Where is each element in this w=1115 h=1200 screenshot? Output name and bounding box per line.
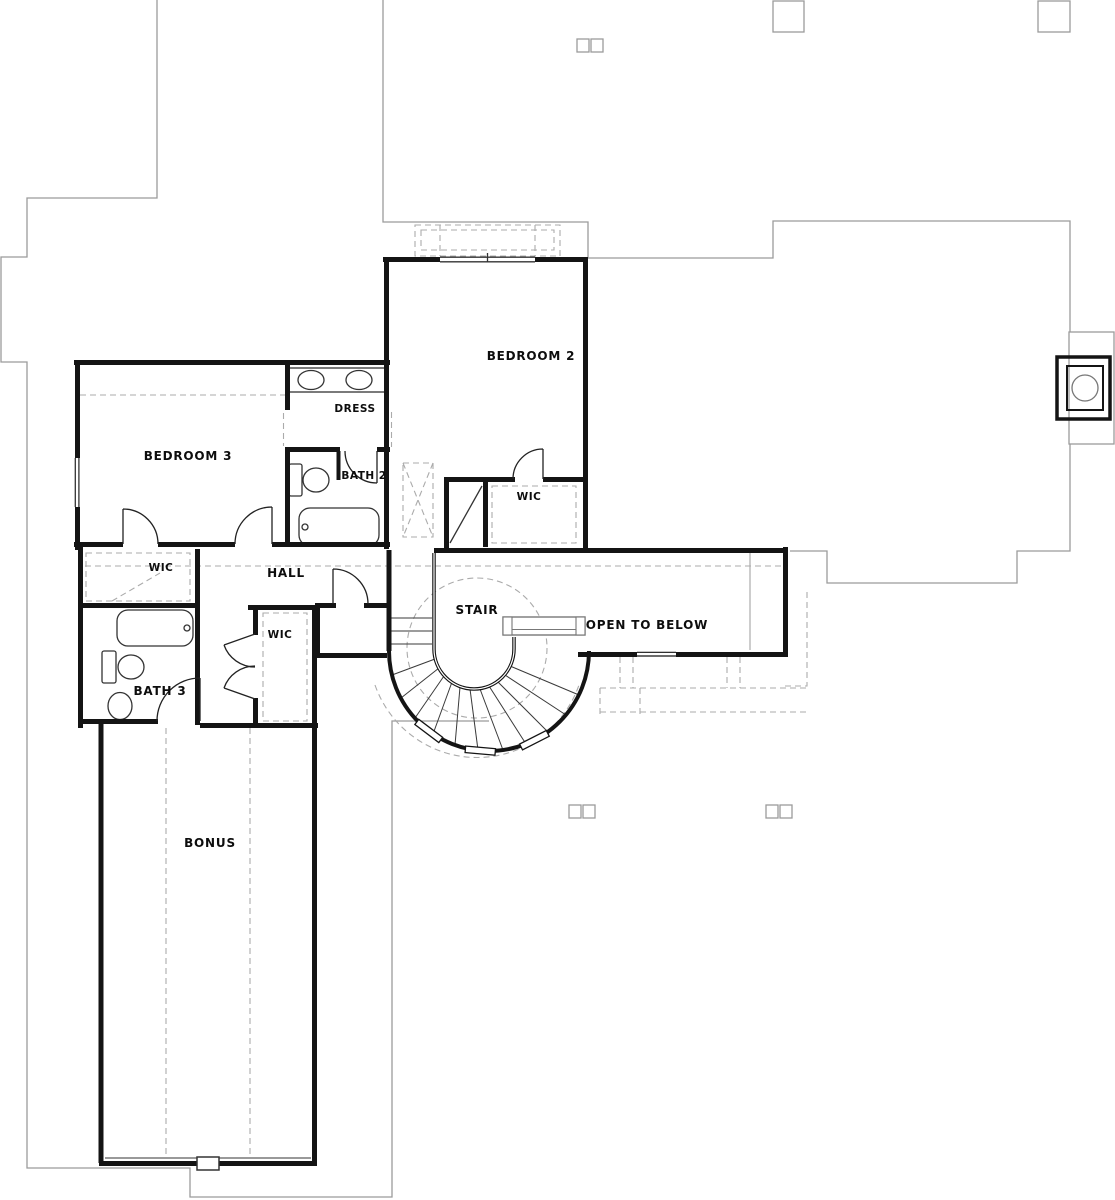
room-label-bath3: BATH 3 (133, 684, 186, 698)
bedroom3-window (75, 458, 79, 507)
toilet-tank (102, 651, 116, 683)
room-label-hall: HALL (267, 566, 305, 580)
bedroom2-window (440, 253, 535, 262)
stair-outer-wall (389, 651, 589, 751)
door-wic-hall-right-leaf (224, 666, 255, 699)
tub-faucet (184, 625, 190, 631)
chimney-flue (1057, 357, 1110, 419)
floor-plan-page: BEDROOM 2 BEDROOM 3 DRESS BATH 2 WIC WIC… (0, 0, 1115, 1200)
toilet-tank (289, 464, 302, 496)
roofline-outline (1, 0, 1114, 1197)
room-label-wic-hall: WIC (268, 629, 293, 641)
chimney-outline (1069, 332, 1114, 444)
sink (298, 371, 324, 390)
tub-faucet (302, 524, 308, 530)
bathtub (117, 610, 193, 646)
door-bedroom3-hall (235, 507, 272, 544)
sink (346, 371, 372, 390)
bonus-ceiling-break-lines (166, 728, 250, 1158)
vent-square (591, 39, 603, 52)
room-label-dress: DRESS (334, 403, 375, 415)
vent-square (583, 805, 595, 818)
walls (74, 257, 788, 1164)
door-hall-closet (333, 569, 368, 604)
bathtub (299, 508, 379, 546)
room-label-bath2: BATH 2 (341, 470, 386, 482)
vent-square (577, 39, 589, 52)
flue-circle (1072, 375, 1098, 401)
room-label-stair: STAIR (456, 603, 499, 617)
room-label-bedroom3: BEDROOM 3 (144, 449, 233, 463)
fireplace-below-outline (600, 688, 808, 714)
room-label-wic-bedroom2: WIC (517, 491, 542, 503)
second-floor-plan-drawing: BEDROOM 2 BEDROOM 3 DRESS BATH 2 WIC WIC… (0, 0, 1115, 1200)
vent-square (569, 805, 581, 818)
stair-walkline-circle (407, 578, 547, 718)
vent-square (766, 805, 778, 818)
stair-inner-rail (434, 553, 514, 689)
toilet-bowl (303, 468, 329, 492)
door-wic-hall-left-leaf (224, 634, 255, 667)
closet-diagonal (450, 486, 482, 543)
wic-bedroom3-shelves (86, 553, 190, 601)
room-label-wic-bedroom3: WIC (149, 562, 174, 574)
room-label-bedroom2: BEDROOM 2 (487, 349, 576, 363)
door-bedroom2 (513, 449, 543, 479)
bonus-vent (197, 1157, 219, 1170)
roof-vent-square (1038, 1, 1070, 32)
vent-square (780, 805, 792, 818)
sink (108, 693, 132, 720)
room-labels: BEDROOM 2 BEDROOM 3 DRESS BATH 2 WIC WIC… (133, 349, 708, 850)
room-label-open-to-below: OPEN TO BELOW (586, 618, 708, 632)
balcony-railing (637, 652, 676, 656)
door-bedroom3-wic (123, 509, 158, 544)
toilet-bowl (118, 655, 144, 679)
stair-structure (389, 553, 589, 755)
room-label-bonus: BONUS (184, 836, 236, 850)
stair-landing (503, 617, 585, 635)
roof-vent-square (773, 1, 804, 32)
dress-cased-opening (284, 412, 392, 447)
